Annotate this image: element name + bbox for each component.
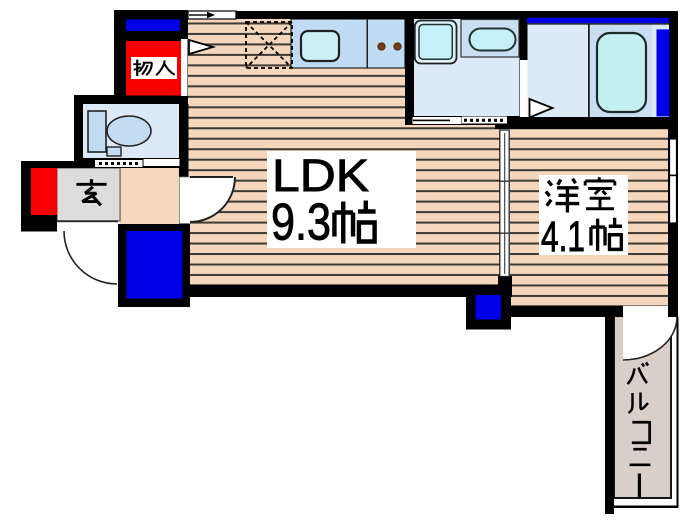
svg-text:4.1: 4.1 bbox=[541, 214, 585, 261]
svg-text:9.3: 9.3 bbox=[271, 194, 331, 252]
